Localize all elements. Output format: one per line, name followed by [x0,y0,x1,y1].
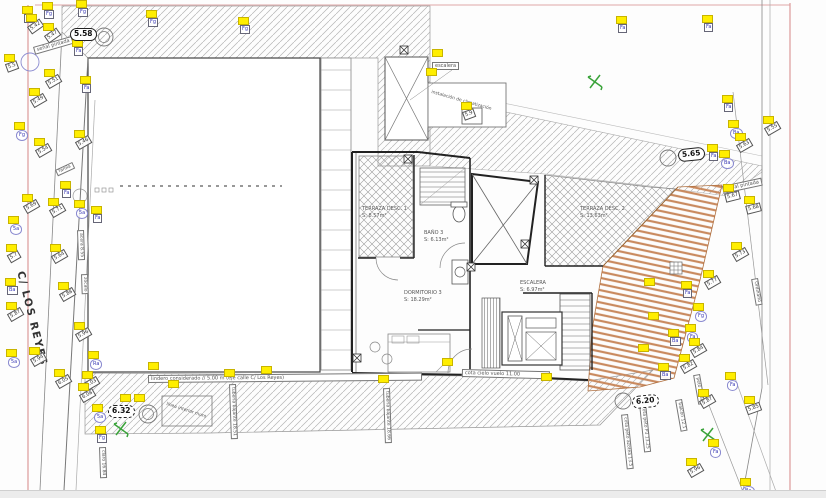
survey-point: Fa [727,380,738,391]
survey-flag [541,373,552,381]
survey-point: 5.5 [5,60,19,72]
survey-flag [698,389,709,397]
survey-flag [134,394,145,402]
survey-point: Fg [695,311,707,322]
survey-point: Ba [7,286,18,295]
survey-flag [693,303,704,311]
survey-point: Fa [62,189,71,198]
survey-flag [5,278,16,286]
survey-flag [644,278,655,286]
survey-flag [148,362,159,370]
survey-flag [648,312,659,320]
annotation: línea interior muro [165,402,206,420]
annotation: zócalo [81,274,89,295]
survey-flag [238,17,249,25]
survey-flag [14,122,25,130]
survey-flag [34,138,45,146]
survey-flag [744,396,755,404]
survey-flag [722,95,733,103]
survey-flag [80,76,91,84]
survey-flag [48,198,59,206]
survey-flag [224,369,235,377]
survey-points-layer: BaFgFg5.425.47Fa5.55.51Fa5.49Fg5.465.54F… [0,0,826,498]
survey-flag [740,478,751,486]
survey-flag [43,23,54,31]
survey-flag [82,371,93,379]
survey-flag [668,329,679,337]
survey-flag [4,54,15,62]
survey-flag [6,349,17,357]
survey-point: Fg [16,130,28,141]
survey-flag [707,144,718,152]
survey-flag [54,369,65,377]
survey-flag [78,383,89,391]
survey-flag [426,68,437,76]
survey-flag [432,49,443,57]
survey-flag [685,324,696,332]
survey-point: Ba [670,337,681,346]
survey-flag [22,6,33,14]
survey-point: 5a [8,357,20,368]
survey-flag [146,10,157,18]
cad-viewport[interactable]: C/ LOS REYES TERRAZA DESC. 1 S: 8.57m² B… [0,0,826,498]
survey-flag [95,426,106,434]
survey-flag [26,14,37,22]
survey-point: Fa [82,84,91,93]
survey-flag [719,150,730,158]
survey-point: Fg [44,10,54,19]
annotation: balcón 12.1 [675,399,688,432]
survey-point: Fa [683,289,692,298]
canvas-bottom-edge [0,490,826,498]
survey-point: Fg [97,434,107,443]
survey-flag [6,302,17,310]
annotation: Ordinario [751,278,763,306]
survey-flag [74,130,85,138]
survey-flag [91,206,102,214]
survey-point: Ba [660,371,671,380]
survey-point: Fa [709,152,718,161]
survey-flag [679,354,690,362]
survey-point: Fa [710,447,721,458]
survey-flag [686,458,697,466]
survey-point: 5.68 [745,202,762,214]
survey-flag [702,15,713,23]
survey-flag [728,120,739,128]
survey-point: 5.9 [462,108,476,120]
survey-flag [74,322,85,330]
annotation: tubería bajante 18.51 [229,384,238,439]
annotation: claro 16.84 [99,447,107,479]
survey-flag [168,380,179,388]
survey-flag [442,358,453,366]
survey-flag [29,88,40,96]
annotation: tubería bajante 18.66 [383,388,392,443]
survey-flag [58,282,69,290]
survey-point: 5a [76,208,88,219]
survey-point: Fa [74,47,83,56]
survey-flag [378,375,389,383]
benchmark-5-58: 5.58 [70,28,97,41]
survey-flag [50,244,61,252]
survey-point: Fg [78,8,88,17]
survey-flag [731,242,742,250]
survey-flag [42,2,53,10]
survey-point: Fa [704,23,713,32]
annotation: cota peto azotea 13.5 [621,414,634,470]
survey-flag [744,196,755,204]
survey-point: Fa [93,214,102,223]
survey-point: Fg [240,25,250,34]
survey-flag [708,439,719,447]
survey-point: Ba [721,158,734,169]
survey-flag [88,351,99,359]
survey-flag [6,244,17,252]
survey-flag [60,181,71,189]
survey-flag [74,200,85,208]
survey-flag [29,347,40,355]
annotation: farola [55,162,75,177]
survey-point: Fa [724,103,733,112]
survey-flag [8,216,19,224]
benchmark-6-32: 6.32 [108,405,135,418]
survey-flag [681,281,692,289]
annotation: acera 8.55 [77,230,85,260]
survey-flag [763,116,774,124]
survey-flag [638,344,649,352]
survey-flag [44,69,55,77]
survey-flag [689,338,700,346]
survey-flag [658,363,669,371]
survey-flag [22,194,33,202]
survey-flag [120,394,131,402]
survey-point: Ra [90,359,102,370]
survey-flag [735,133,746,141]
survey-point: Fa [618,24,627,33]
survey-flag [461,102,472,110]
annotation: cota cielo vuelo 11.00 [462,369,550,379]
survey-flag [76,0,87,8]
annotation: cota peto P3 13.25 [639,403,651,452]
survey-flag [725,372,736,380]
survey-flag [261,366,272,374]
survey-flag [703,270,714,278]
survey-point: Fg [148,18,158,27]
survey-flag [723,184,734,192]
survey-flag [616,16,627,24]
survey-flag [92,404,103,412]
survey-point: 5a [94,412,106,423]
survey-point: 5a [10,224,22,235]
